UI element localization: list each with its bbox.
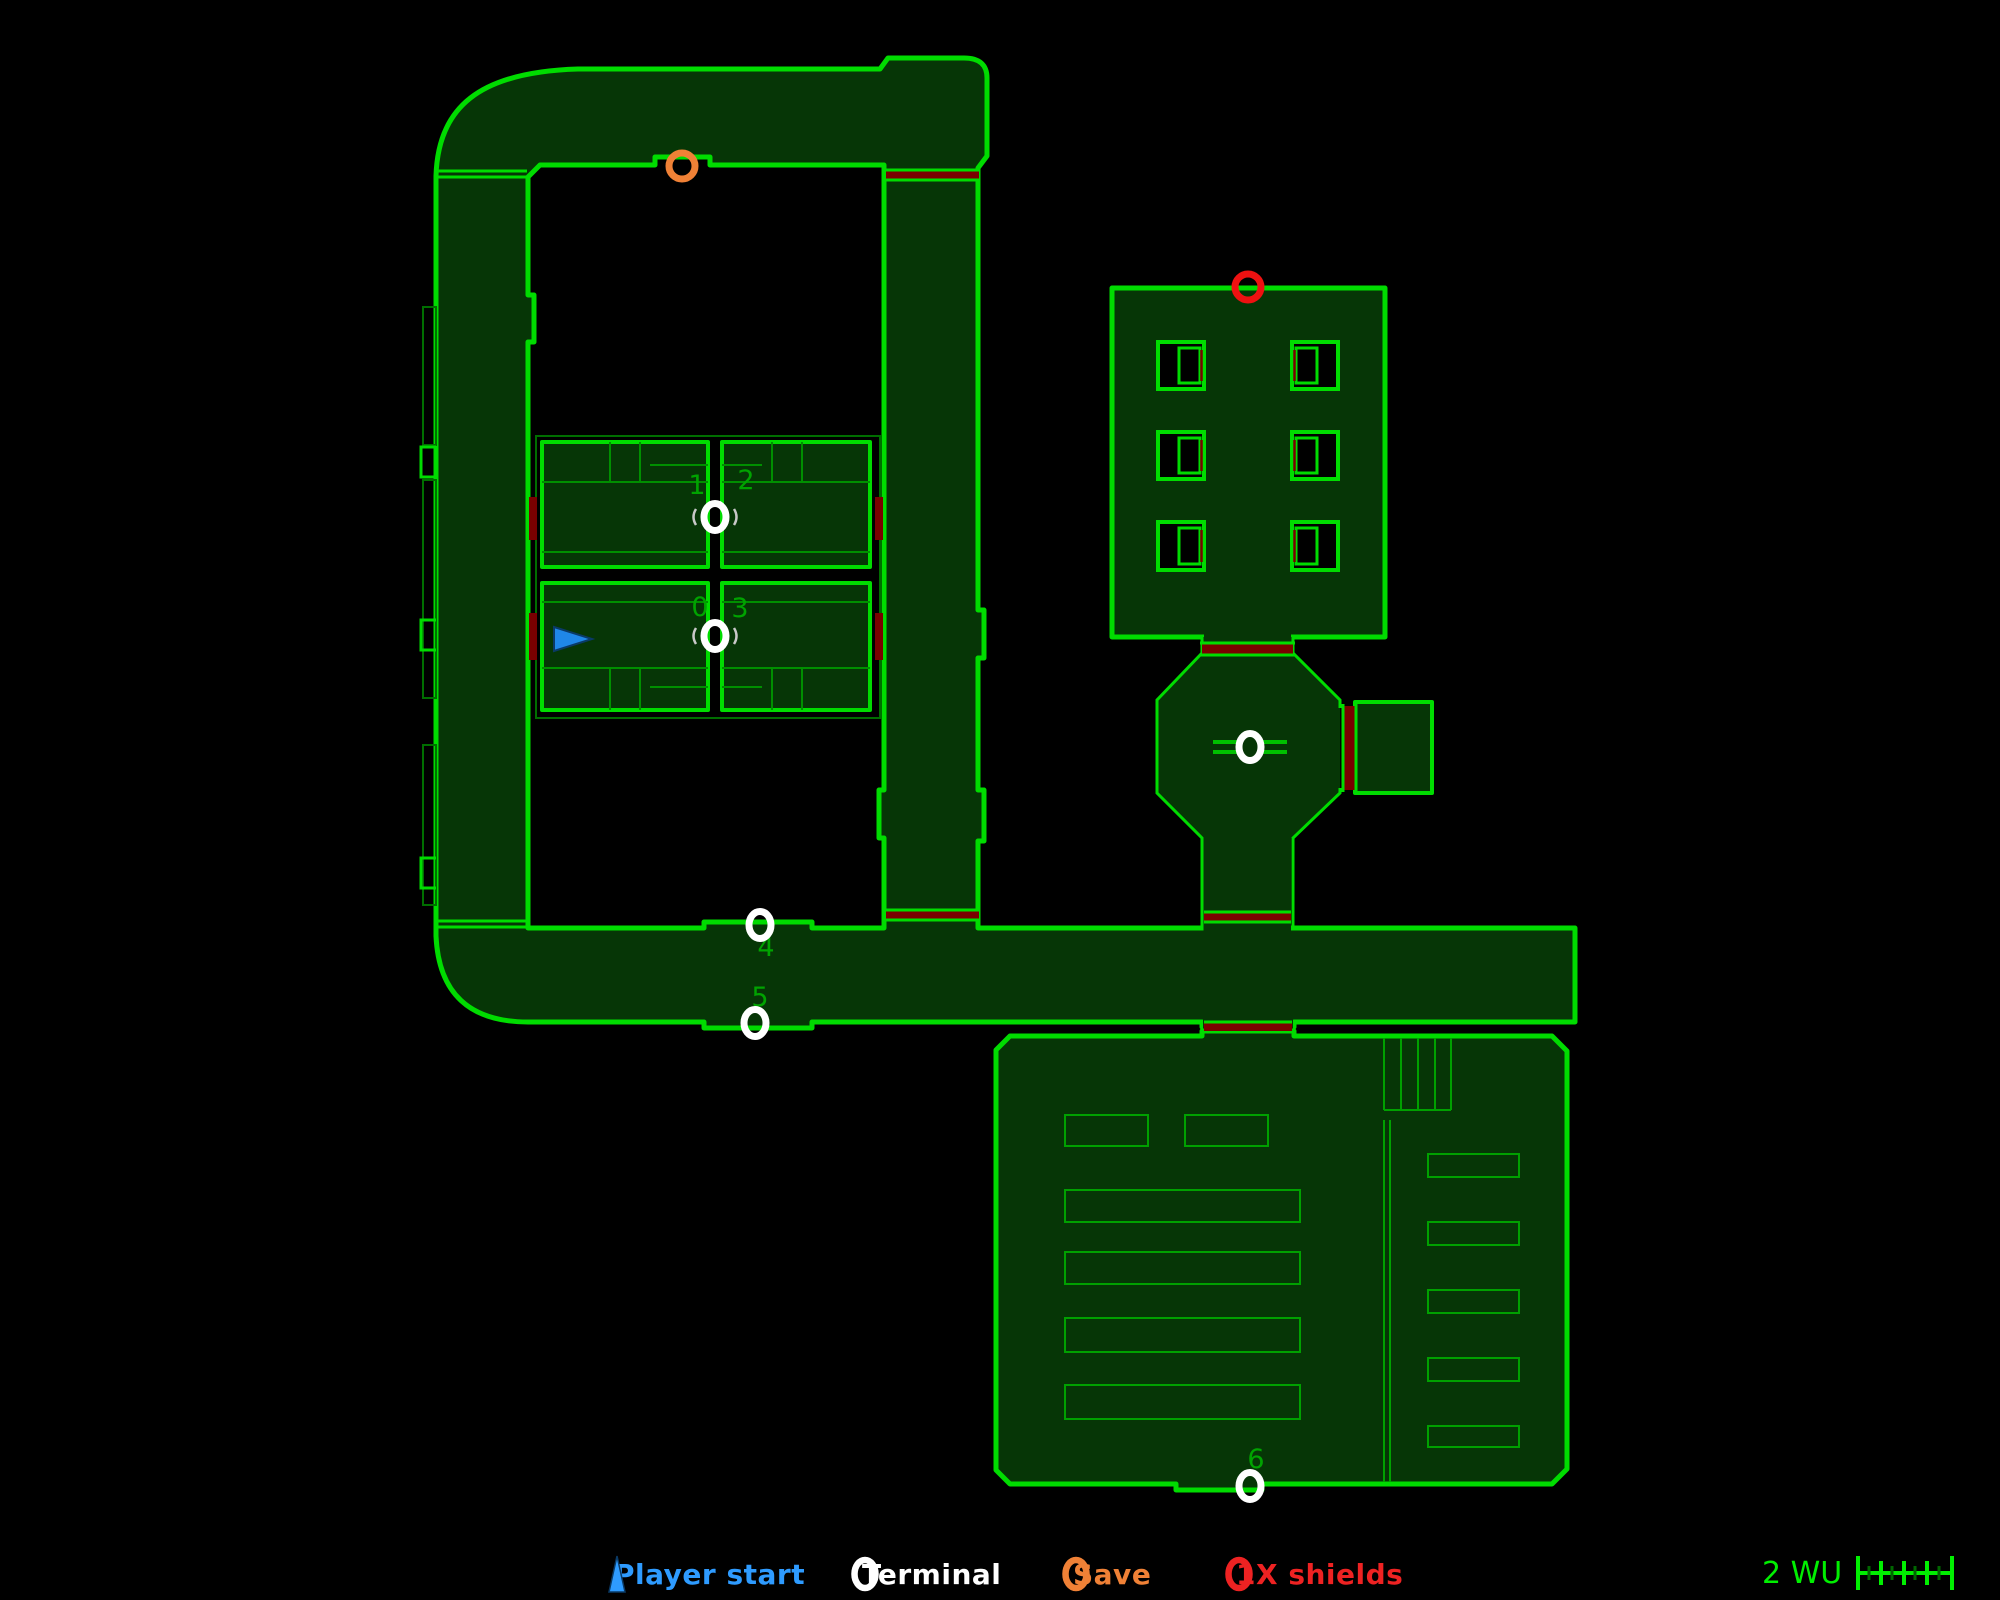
octagon-room bbox=[1157, 637, 1340, 931]
terminal-number-3: 3 bbox=[731, 593, 748, 624]
save-icon bbox=[1059, 1552, 1093, 1596]
room-2 bbox=[722, 442, 870, 567]
terminal-number-0: 0 bbox=[691, 592, 708, 623]
scale-ruler bbox=[1852, 1548, 1982, 1600]
octagon-side-room bbox=[1343, 702, 1432, 793]
legend-label-shields: 1X shields bbox=[1236, 1558, 1403, 1591]
legend-item-player-start: Player start bbox=[600, 1552, 805, 1596]
legend-item-terminal: Terminal bbox=[848, 1552, 1001, 1596]
central-rooms bbox=[529, 436, 883, 718]
dormitory-room bbox=[996, 1018, 1567, 1490]
terminal-icon bbox=[848, 1552, 882, 1596]
player-start-icon bbox=[600, 1552, 634, 1596]
terminal-number-1: 1 bbox=[688, 470, 705, 501]
barracks-building bbox=[1112, 288, 1385, 640]
room-1 bbox=[542, 442, 708, 567]
legend-item-shields: 1X shields bbox=[1222, 1552, 1403, 1596]
level-map-viewport[interactable]: 0123456 bbox=[0, 0, 2000, 1600]
scale-label: 2 WU bbox=[1762, 1556, 1842, 1591]
legend-label-player-start: Player start bbox=[614, 1558, 805, 1591]
legend-label-terminal: Terminal bbox=[862, 1558, 1001, 1591]
legend-item-save: Save bbox=[1059, 1552, 1151, 1596]
game-map-screen: 0123456 Player startTerminalSave1X shiel… bbox=[0, 0, 2000, 1600]
terminal-number-2: 2 bbox=[737, 465, 754, 496]
shields-icon bbox=[1222, 1552, 1256, 1596]
